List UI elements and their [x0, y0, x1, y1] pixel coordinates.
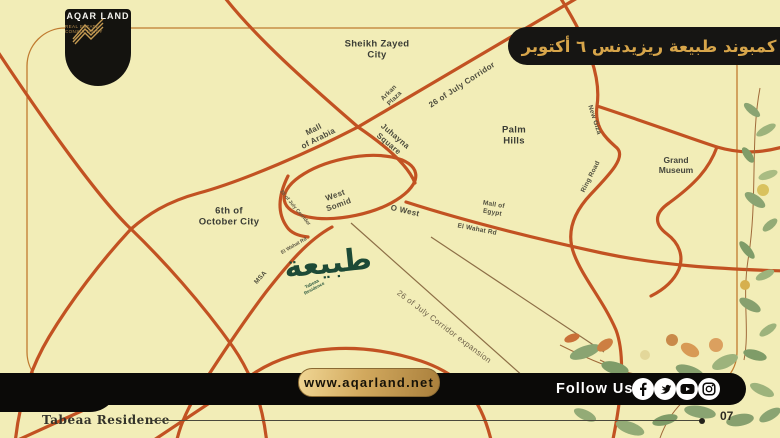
footer-page-title: Tabeaa Residence	[42, 413, 170, 427]
website-url: www.aqarland.net	[304, 375, 434, 390]
follow-us-label: Follow Us	[556, 381, 633, 397]
footer-rule-line	[152, 420, 700, 421]
youtube-icon[interactable]	[676, 378, 698, 400]
footer-rule-dot	[699, 418, 705, 424]
gold-wings-icon	[65, 17, 113, 45]
twitter-icon[interactable]	[654, 378, 676, 400]
website-pill[interactable]: www.aqarland.net	[298, 368, 440, 397]
facebook-icon[interactable]	[632, 378, 654, 400]
brochure-page: Sheikh Zayed CityArkan Plaza26 of July C…	[0, 0, 780, 438]
instagram-icon[interactable]	[698, 378, 720, 400]
title-banner: كمبوند طبيعة ريزيدنس ٦ أكتوبر	[508, 27, 780, 65]
aqar-land-logo-badge: AQAR LAND REAL ESTATE CONSULTANCY	[65, 9, 131, 86]
title-banner-text: كمبوند طبيعة ريزيدنس ٦ أكتوبر	[522, 37, 777, 56]
page-number: 07	[720, 409, 733, 423]
